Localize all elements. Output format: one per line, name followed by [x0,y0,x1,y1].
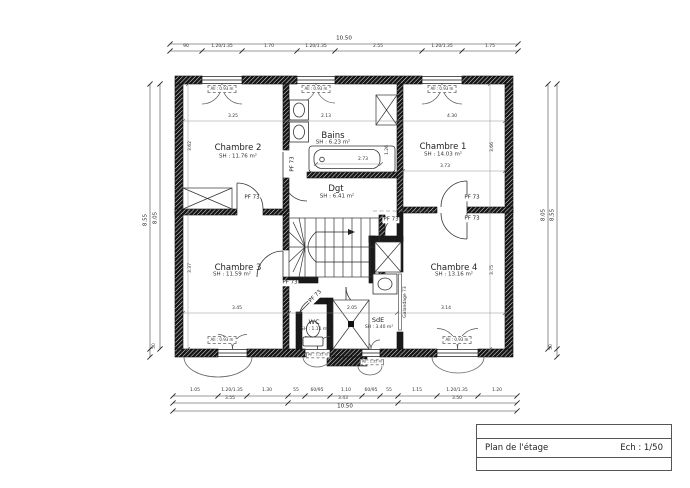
room-area-chambre1: SH : 14.03 m² [424,152,462,158]
dim-interior: 3.62 [189,141,194,151]
title-block: Plan de l'étage Ech : 1/50 [476,424,672,471]
dim-interior: 3.25 [228,115,238,120]
dim-interior: 3.45 [232,307,242,312]
dim-top-total: 10.50 [336,36,352,42]
dim-right-base: 50 [550,344,555,350]
room-label-dgt: Dgt [328,185,343,194]
plan-scale: Ech : 1/50 [620,443,663,453]
room-area-dgt: SH : 6.41 m² [320,194,355,200]
window-sill-label: All : 0.93 m [428,85,457,93]
dim-bottom-segment: 1.20 [492,389,502,394]
dim-bottom-segment: 1.20/1.35 [446,389,468,394]
dim-bottom-segment: 1.05 [190,389,200,394]
dim-top-segment: 1.20/1.35 [305,45,327,50]
dim-bottom-segment: 55 [386,389,392,394]
dim-bottom-segment: 1.30 [262,389,272,394]
room-area-chambre2: SH : 11.76 m² [219,154,257,160]
dim-bottom-segment: 60/95 [311,389,324,394]
room-area-sde: SH : 3.40 m² [365,326,393,331]
window-sill-label: All : 0.93 m [443,336,472,344]
room-label-chambre1: Chambre 1 [420,143,467,152]
dim-left-outer: 8.55 [143,214,149,226]
room-area-wc: SH : 1.11 m² [301,328,329,333]
dim-bottom-segment: 60/95 [365,389,378,394]
dim-interior: 2.73 [358,158,368,163]
window-sill-label: All : 0.93 m [208,336,237,344]
room-label-sde: SdE [372,317,384,324]
dim-right-inner: 8.05 [541,209,547,221]
window-sill-label-small: All : 1.35 m [306,352,330,358]
drawing-sheet: Chambre 2 SH : 11.76 m² Bains SH : 6.23 … [0,0,690,488]
dim-interior: 1.26 [386,145,391,155]
door-label-pf73: PF 73 [243,195,260,201]
door-label-galandage: Galandage 73 [404,286,409,318]
window-sill-label-small: All : 1.35 m [360,359,384,365]
dim-bottom-segment: 3.55 [225,397,235,402]
dim-left-inner: 8.05 [153,212,159,224]
dim-top-segment: 2.55 [373,45,383,50]
dim-bottom-segment: 3.50 [452,397,462,402]
room-area-chambre4: SH : 13.16 m² [435,272,473,278]
dim-interior: 4.30 [447,115,457,120]
labels-layer: Chambre 2 SH : 11.76 m² Bains SH : 6.23 … [0,0,690,488]
room-area-bains: SH : 6.23 m² [316,140,351,146]
door-label-pf73: PF 73 [290,155,296,172]
dim-bottom-segment: 3.43 [338,397,348,402]
dim-top-segment: 1.20/1.35 [431,45,453,50]
dim-top-segment: 1.70 [264,45,274,50]
window-sill-label: All : 0.93 m [302,85,331,93]
dim-top-segment: 1.20/1.35 [211,45,233,50]
door-label-pf73: PF 73 [463,216,480,222]
door-label-pf73: PF 73 [382,217,399,223]
dim-bottom-total: 10.50 [337,404,353,410]
dim-bottom-segment: 1.15 [412,389,422,394]
dim-bottom-segment: 1.20/1.35 [221,389,243,394]
window-sill-label: All : 0.93 m [208,85,237,93]
dim-interior: 3.14 [441,307,451,312]
dim-interior: 2.05 [347,307,357,312]
dim-interior: 3.73 [440,165,450,170]
plan-title: Plan de l'étage [485,443,548,453]
dim-interior: 3.66 [491,142,496,152]
title-block-empty-row [477,425,671,439]
title-block-main-row: Plan de l'étage Ech : 1/50 [477,439,671,458]
dim-bottom-segment: 55 [293,389,299,394]
room-area-chambre3: SH : 11.59 m² [213,272,251,278]
dim-left-base: 50 [153,343,158,349]
dim-top-segment: 90 [183,45,189,50]
dim-bottom-segment: 1.10 [341,389,351,394]
dim-interior: 2.13 [321,115,331,120]
dim-interior: 3.75 [491,265,496,275]
dim-interior: 3.37 [189,263,194,273]
dim-top-segment: 1.75 [485,45,495,50]
room-label-chambre2: Chambre 2 [215,144,262,153]
door-label-pf73: PF 73 [463,195,480,201]
door-label-pf73: PF 73 [308,289,324,305]
room-label-wc: WC [309,319,320,326]
door-label-pf73: PF 73 [281,280,298,286]
dim-right-outer: 8.55 [550,209,556,221]
